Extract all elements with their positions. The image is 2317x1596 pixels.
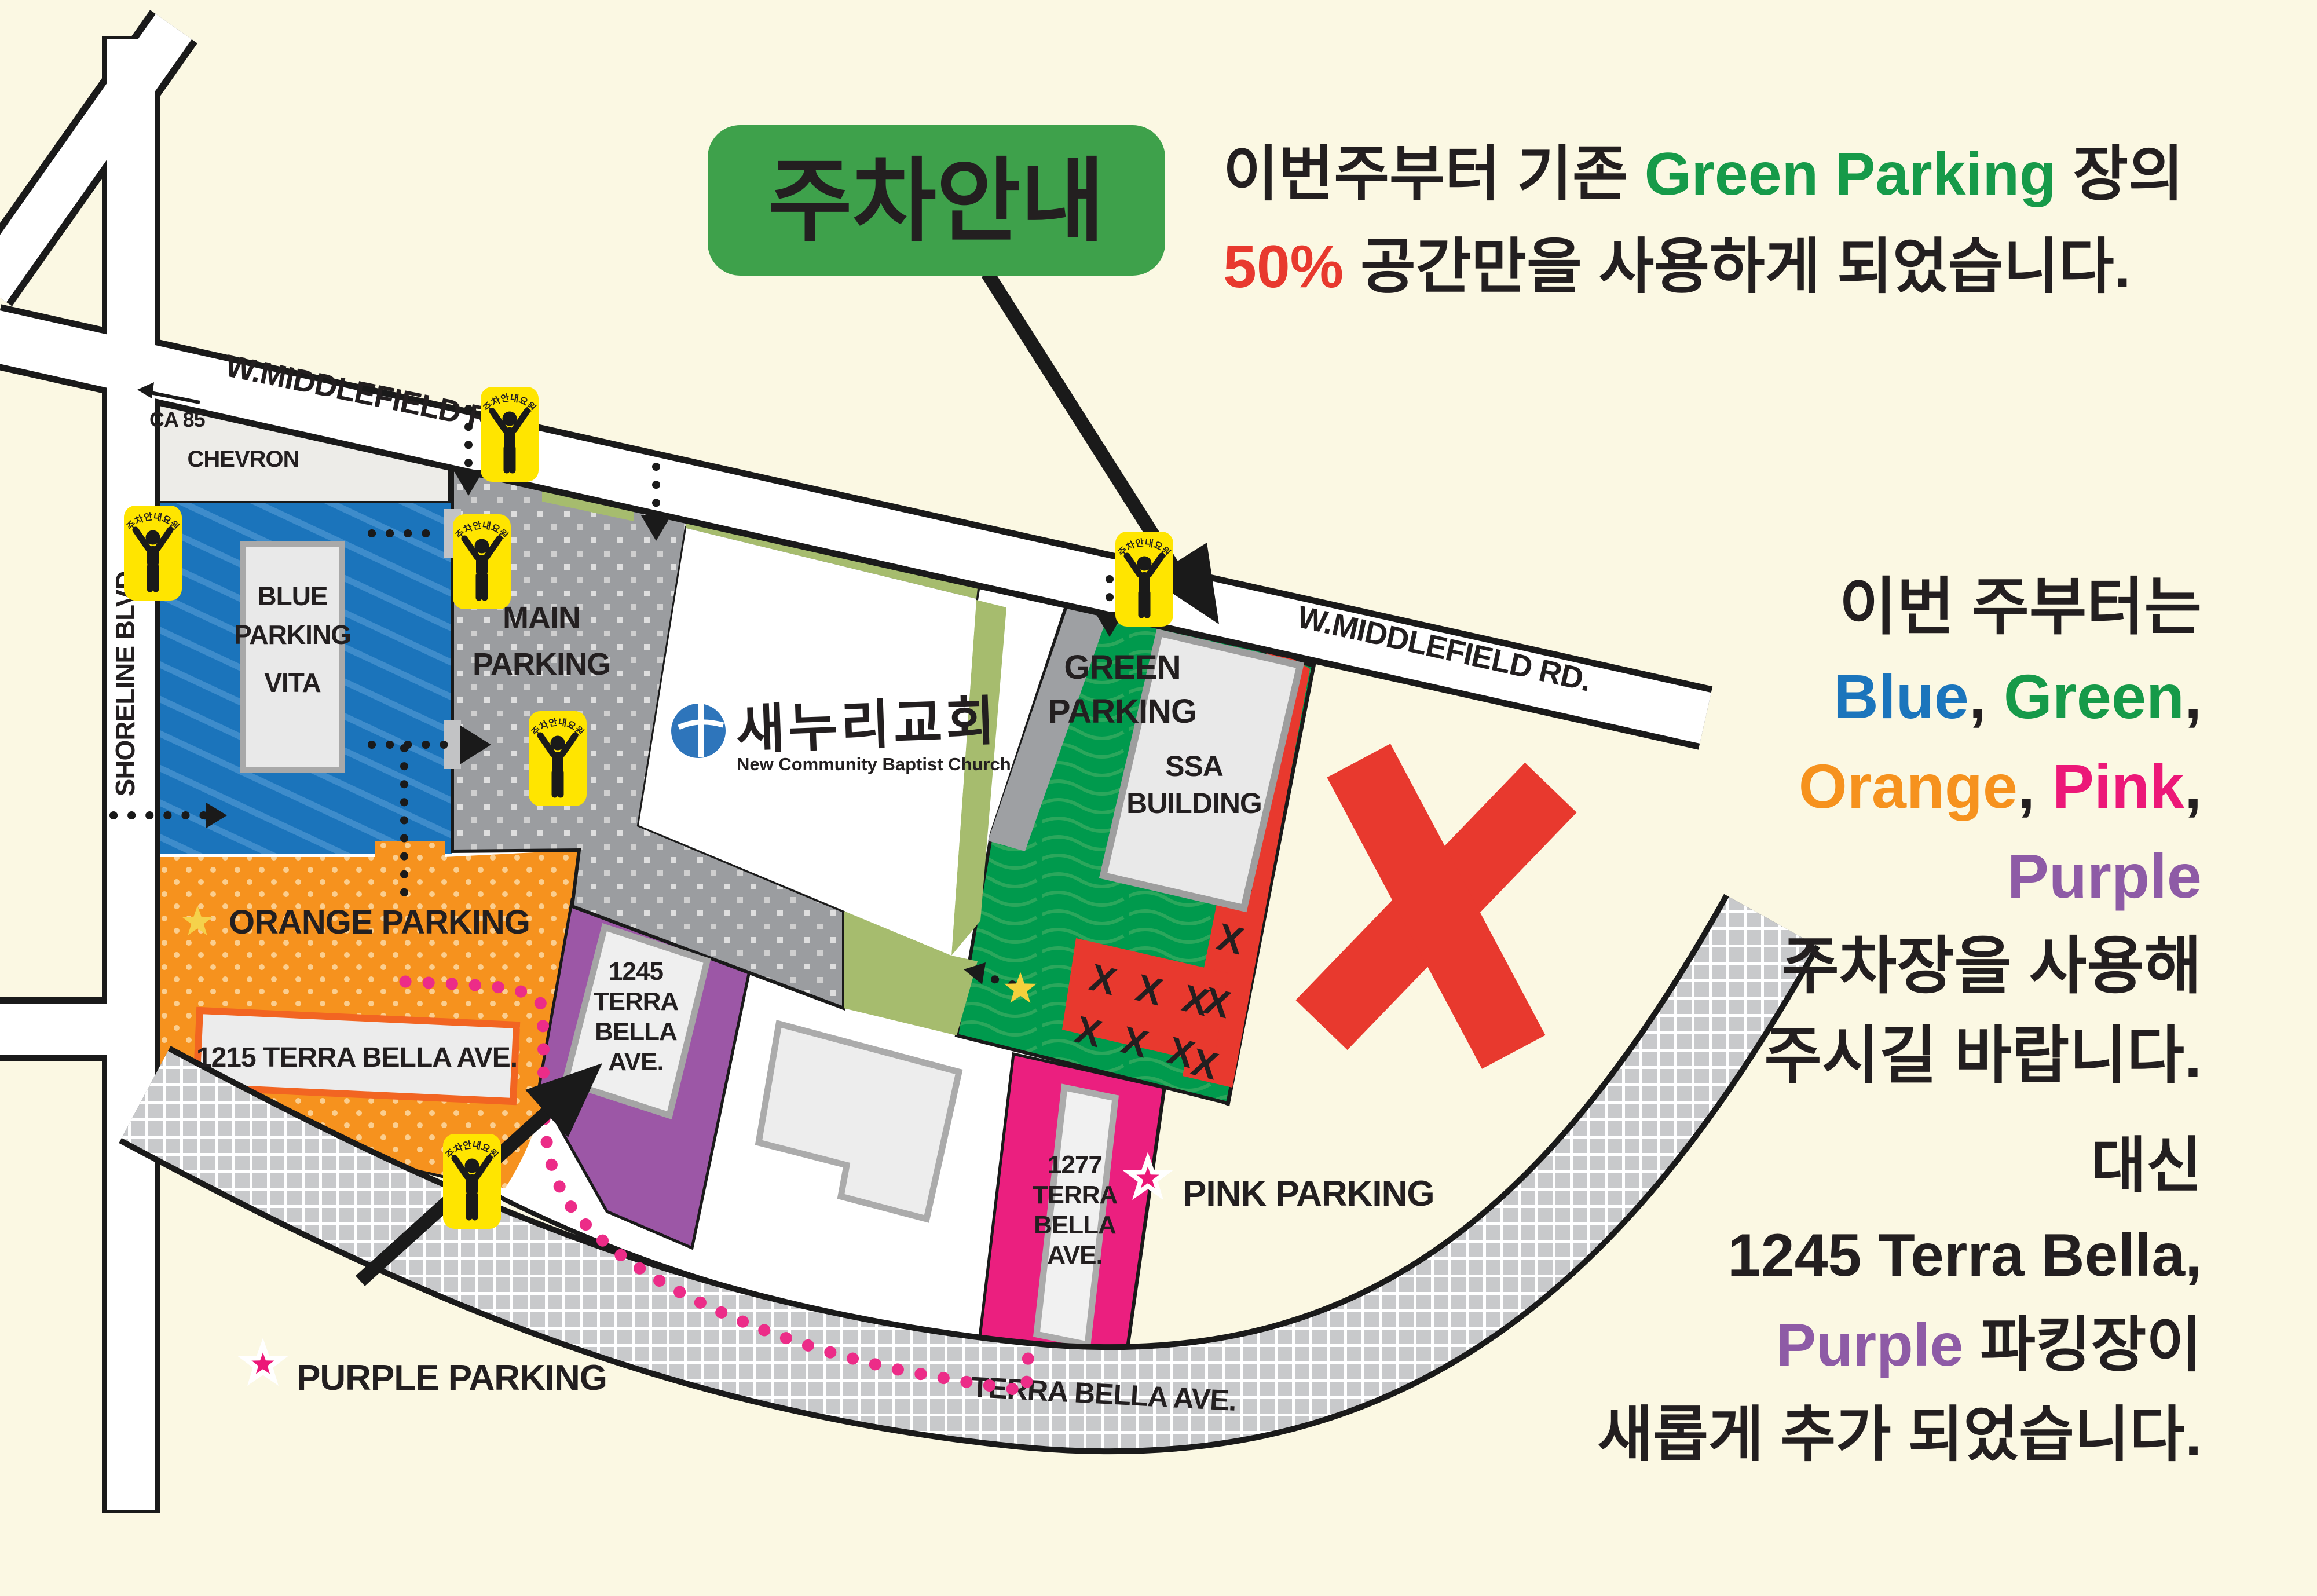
building-1277-label: AVE. bbox=[1047, 1241, 1102, 1269]
side-note-line4: Purple bbox=[2007, 841, 2202, 911]
blue-parking-label: PARKING bbox=[234, 620, 351, 650]
blue-parking-label: VITA bbox=[264, 668, 320, 698]
main-parking-label: PARKING bbox=[473, 647, 610, 682]
building-1215-label: 1215 TERRA BELLA AVE. bbox=[196, 1042, 517, 1073]
side-note-line2: Blue, Green, bbox=[1833, 661, 2202, 731]
ssa-building-label: SSA bbox=[1165, 750, 1223, 782]
bottom-note-line1: 대신 bbox=[2091, 1132, 2202, 1199]
bottom-note-line2: 1245 Terra Bella, bbox=[1727, 1222, 2202, 1289]
church-name-en: New Community Baptist Church bbox=[737, 754, 1011, 774]
building-1245-label: BELLA bbox=[595, 1017, 677, 1046]
bottom-note-line4: 새롭게 추가 되었습니다. bbox=[1598, 1401, 2202, 1469]
building-1277-label: TERRA bbox=[1033, 1181, 1118, 1209]
side-note-line5: 주차장을 사용해 bbox=[1781, 931, 2202, 1001]
building-1277-label: BELLA bbox=[1034, 1211, 1116, 1239]
ssa-building-label: BUILDING bbox=[1126, 787, 1262, 819]
headline-line1: 이번주부터 기존 Green Parking 장의 bbox=[1223, 141, 2184, 208]
building-1245-label: AVE. bbox=[608, 1048, 663, 1076]
blue-parking-label: BLUE bbox=[257, 581, 327, 611]
orange-parking-label: ORANGE PARKING bbox=[229, 903, 530, 941]
side-note-line6: 주시길 바랍니다. bbox=[1764, 1020, 2202, 1090]
side-note-line1: 이번 주부터는 bbox=[1839, 572, 2202, 642]
green-parking-label: GREEN bbox=[1064, 649, 1180, 686]
notice-badge-label: 주차안내 bbox=[768, 151, 1104, 252]
pink-parking-label: PINK PARKING bbox=[1183, 1174, 1434, 1214]
ca85-label: CA 85 bbox=[149, 408, 206, 431]
headline-line2: 50% 공간만을 사용하게 되었습니다. bbox=[1223, 233, 2131, 301]
purple-parking-label: PURPLE PARKING bbox=[297, 1358, 607, 1398]
parking-guide-poster: X X X X X X X X X X X X X bbox=[0, 0, 2317, 1596]
building-1277-label: 1277 bbox=[1048, 1151, 1102, 1179]
bottom-note-line3: Purple 파킹장이 bbox=[1776, 1312, 2202, 1379]
church-name-kr: 새누리교회 bbox=[735, 691, 999, 760]
main-parking-label: MAIN bbox=[503, 601, 580, 635]
chevron-label: CHEVRON bbox=[187, 446, 299, 472]
side-note-line3: Orange, Pink, bbox=[1799, 751, 2202, 821]
building-1245-label: TERRA bbox=[594, 987, 679, 1016]
blue-parking-building bbox=[243, 544, 342, 770]
green-parking-label: PARKING bbox=[1048, 693, 1196, 730]
building-1245-label: 1245 bbox=[609, 957, 663, 986]
